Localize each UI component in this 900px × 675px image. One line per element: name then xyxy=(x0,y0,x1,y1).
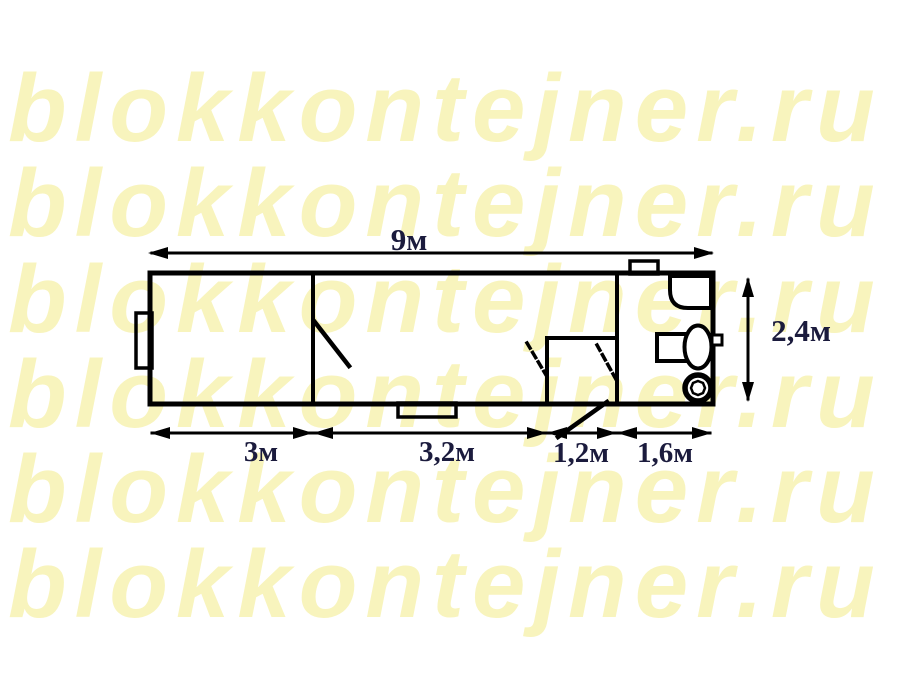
arrowhead xyxy=(150,427,170,439)
arrowhead-down xyxy=(742,382,754,402)
floor-drain xyxy=(685,375,711,401)
diagram-canvas: blokkontejner.ru blokkontejner.ru blokko… xyxy=(0,0,900,675)
wash-basin xyxy=(685,326,712,369)
door-swing-vestibule-right xyxy=(597,345,618,383)
arrowhead-right xyxy=(694,247,714,259)
wall-pipe-outlet xyxy=(712,335,722,345)
arrowhead-up xyxy=(742,277,754,297)
door-swing-vestibule-left xyxy=(527,343,546,375)
dimension-label-segment: 1,2м xyxy=(545,438,617,468)
dimension-label-segment: 3,2м xyxy=(411,437,483,467)
arrowhead xyxy=(527,427,547,439)
door-leaf-room1 xyxy=(314,321,349,366)
dimension-label-total: 9м xyxy=(375,224,443,257)
vestibule-walls xyxy=(547,338,617,402)
corner-sink xyxy=(670,276,711,308)
arrowhead-left xyxy=(148,247,168,259)
dimension-label-segment: 3м xyxy=(225,437,297,467)
dimension-label-height: 2,4м xyxy=(764,315,838,348)
container-outline xyxy=(150,273,713,404)
dimension-label-segment: 1,6м xyxy=(629,438,701,468)
arrowhead xyxy=(313,427,333,439)
cistern xyxy=(657,334,687,361)
dimension-line-height xyxy=(742,277,754,402)
